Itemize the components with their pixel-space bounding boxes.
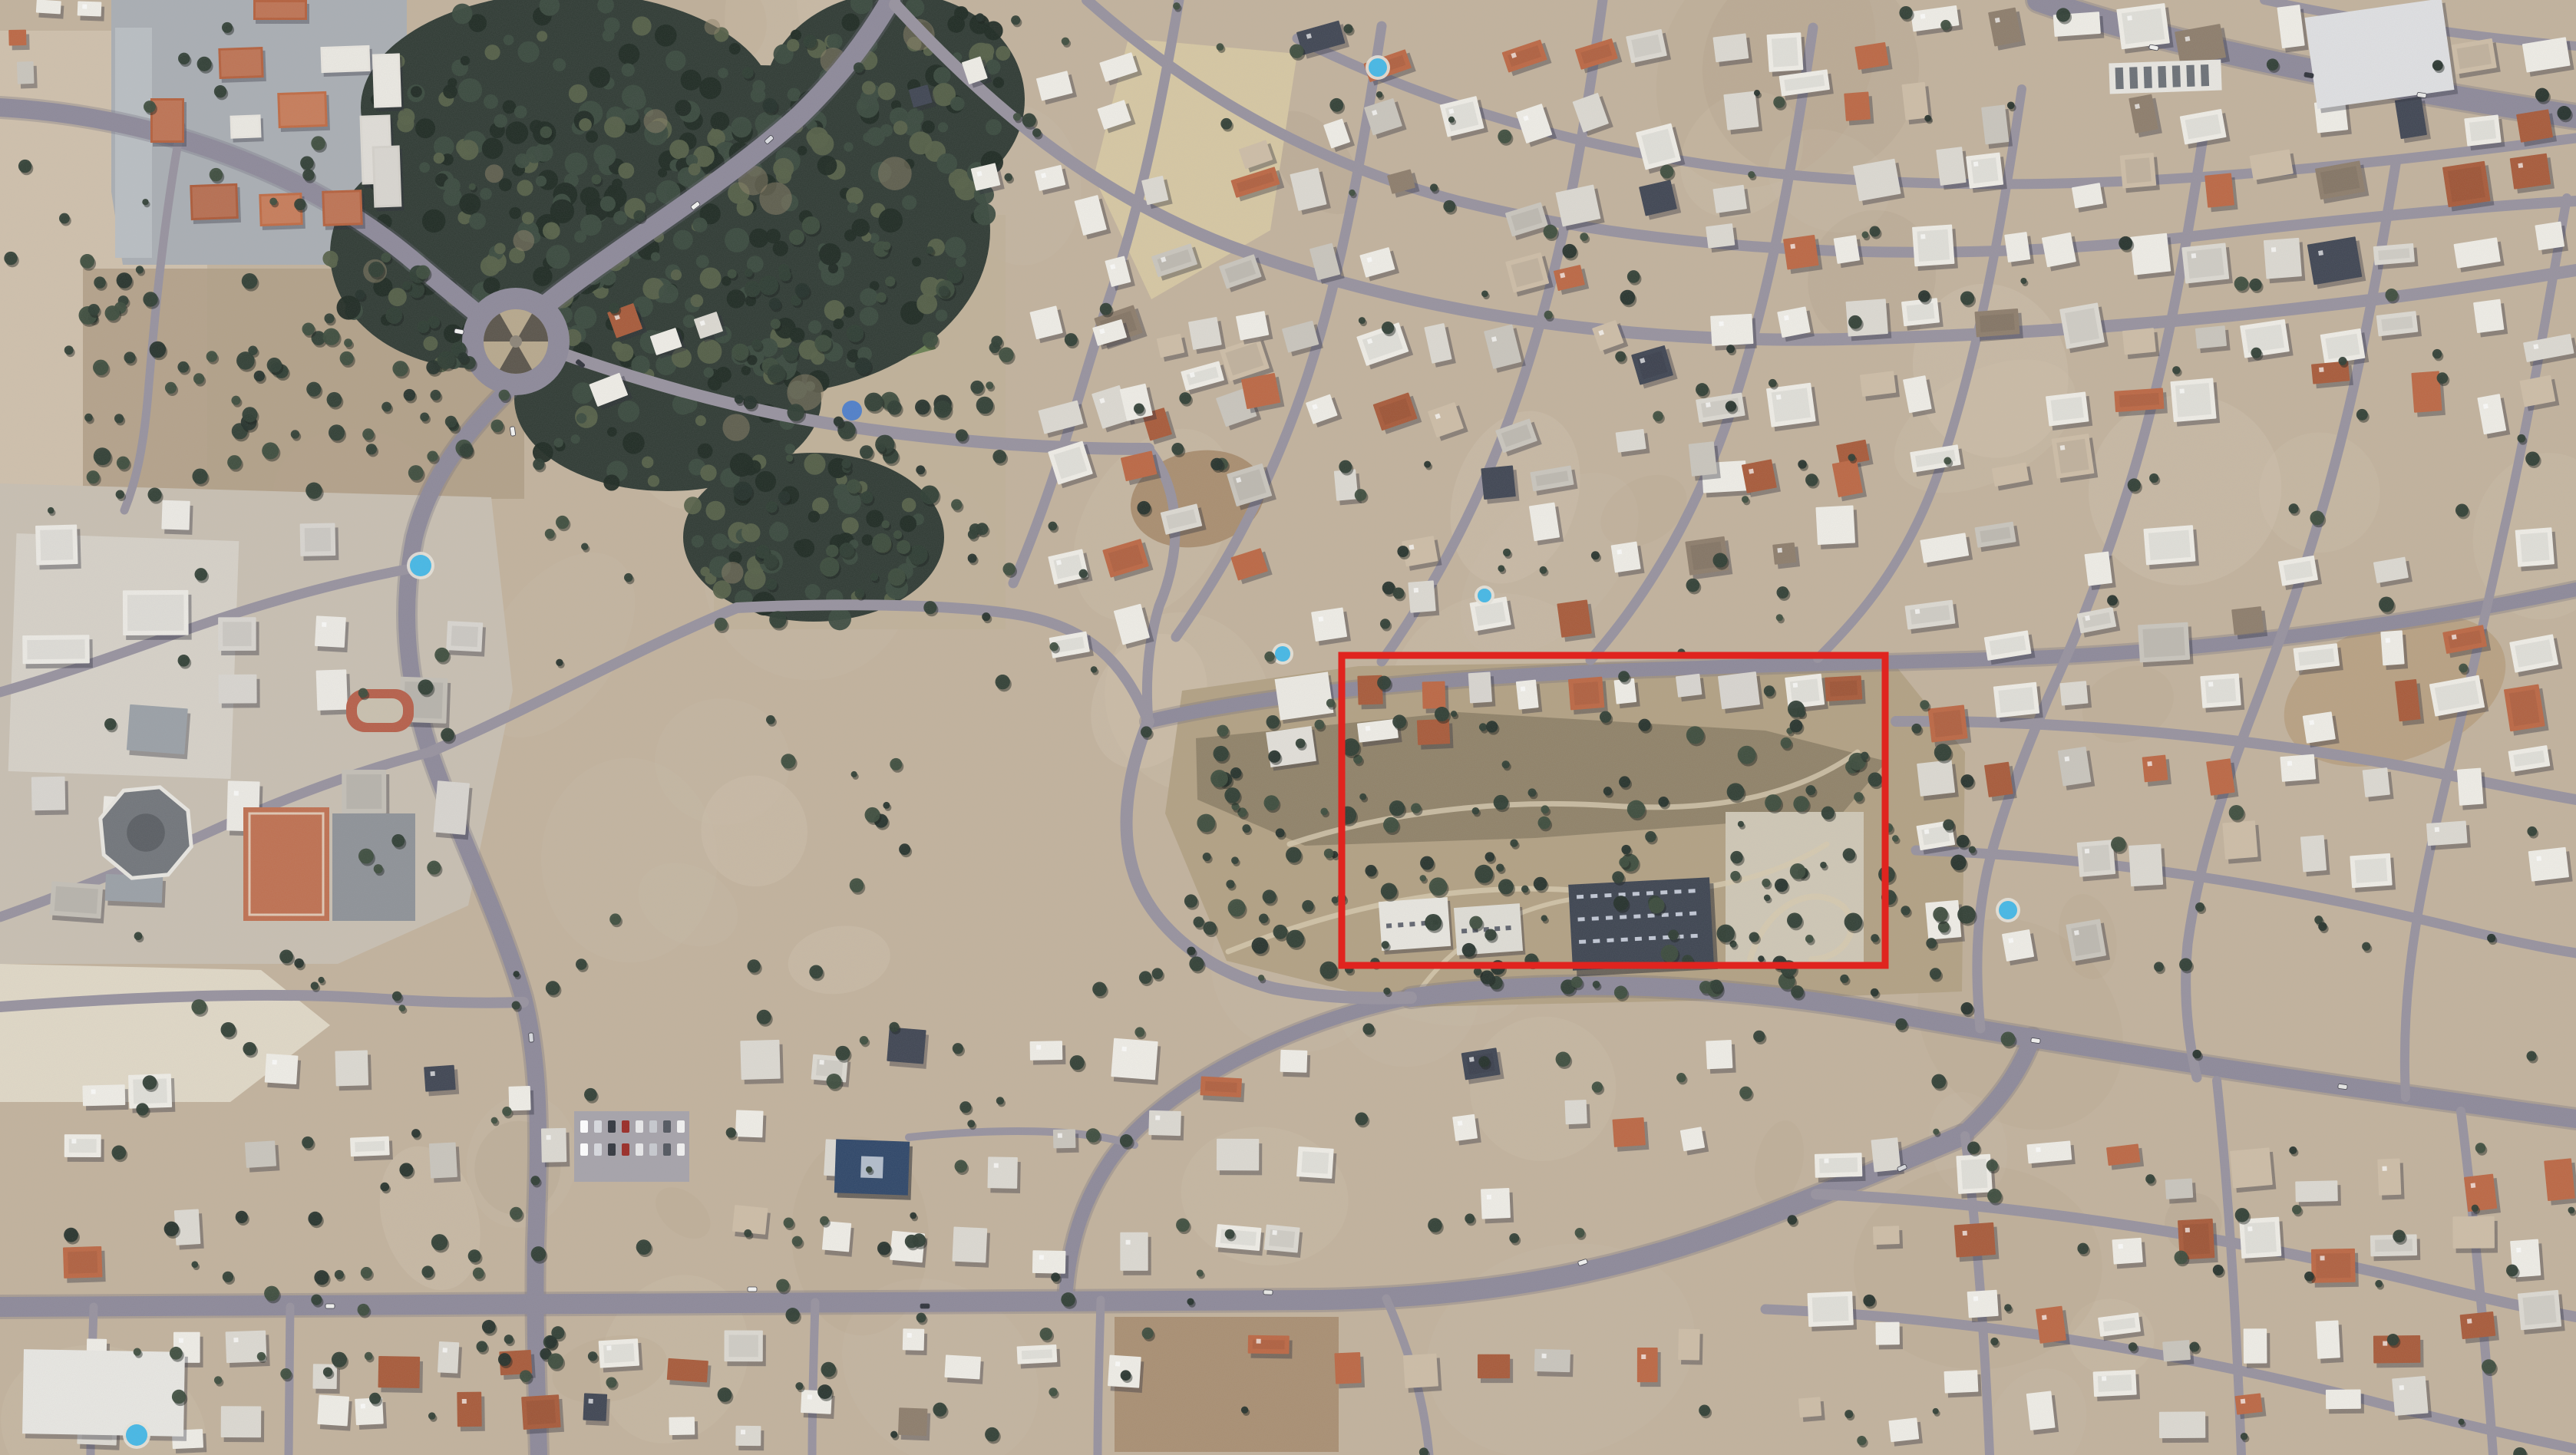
grain-layer (0, 0, 2576, 1455)
photo-grain-overlay (0, 0, 2576, 1455)
satellite-image-viewport (0, 0, 2576, 1455)
satellite-map-canvas (0, 0, 2576, 1455)
